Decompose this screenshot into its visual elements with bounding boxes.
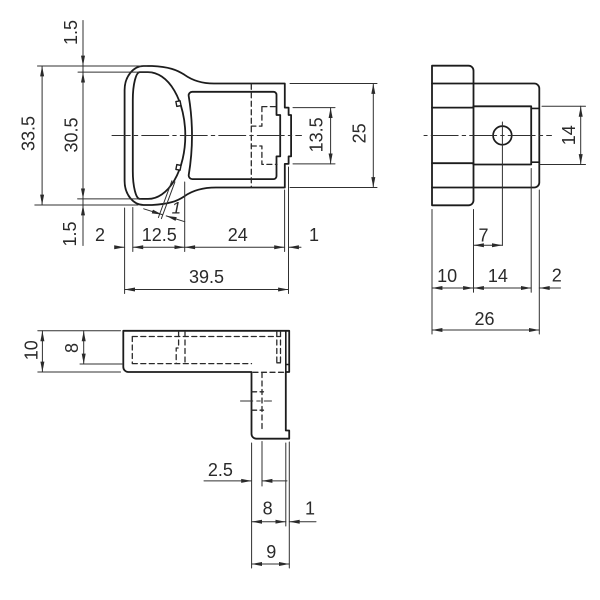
svg-text:10: 10 bbox=[437, 266, 457, 286]
svg-text:33.5: 33.5 bbox=[19, 116, 39, 151]
svg-text:1: 1 bbox=[309, 225, 319, 245]
svg-text:26: 26 bbox=[474, 309, 494, 329]
svg-text:8: 8 bbox=[62, 343, 82, 353]
svg-text:1.5: 1.5 bbox=[60, 221, 80, 246]
svg-text:1: 1 bbox=[172, 199, 181, 218]
svg-text:13.5: 13.5 bbox=[306, 117, 326, 152]
svg-text:25: 25 bbox=[350, 123, 370, 143]
svg-text:8: 8 bbox=[263, 498, 273, 518]
svg-text:14: 14 bbox=[488, 266, 508, 286]
svg-text:14: 14 bbox=[559, 125, 579, 145]
svg-text:39.5: 39.5 bbox=[189, 267, 224, 287]
svg-text:9: 9 bbox=[266, 542, 276, 562]
svg-text:24: 24 bbox=[228, 225, 248, 245]
svg-text:2.5: 2.5 bbox=[208, 460, 233, 480]
svg-text:2: 2 bbox=[95, 225, 105, 245]
svg-text:7: 7 bbox=[478, 225, 488, 245]
svg-text:12.5: 12.5 bbox=[142, 225, 177, 245]
svg-text:10: 10 bbox=[21, 340, 41, 360]
svg-text:30.5: 30.5 bbox=[62, 117, 82, 152]
svg-text:1: 1 bbox=[305, 498, 315, 518]
svg-text:1.5: 1.5 bbox=[61, 20, 81, 45]
svg-text:2: 2 bbox=[552, 266, 562, 286]
